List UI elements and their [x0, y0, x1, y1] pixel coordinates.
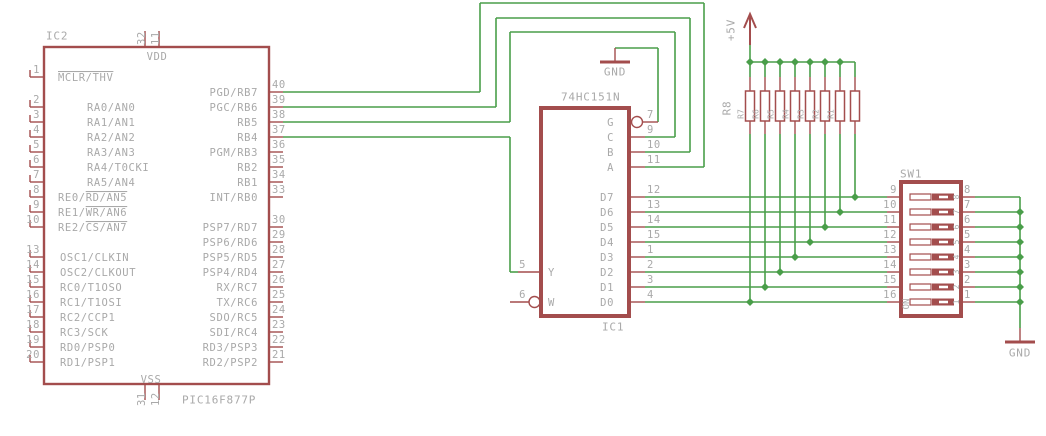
ic2-pin-name: RD3/PSP3: [203, 342, 258, 354]
wire-junction[interactable]: [776, 58, 784, 66]
sw1-pin-number: 3: [964, 259, 971, 271]
ic2-pin-number: 32: [136, 31, 148, 45]
ic2-pin-name: RA4/T0CKI: [87, 162, 149, 174]
ic2-pin-name: OSC1/CLKIN: [60, 252, 129, 264]
ic2-pin-name: PGC/RB6: [210, 102, 258, 114]
ic1-pin-name: W: [548, 297, 555, 309]
ic2-pin-number: 11: [150, 31, 162, 45]
sw1-position-digit: 1: [952, 299, 961, 304]
ic2-pin-name: RA2/AN2: [87, 132, 135, 144]
ic2-pin-number: 25: [272, 289, 286, 301]
ic2-pin-name: INT/RB0: [210, 192, 258, 204]
ic1-pin-number: 6: [519, 289, 526, 301]
ic2-pin-number: 26: [272, 274, 286, 286]
sw1-pin-number: 4: [964, 244, 971, 256]
ic2-pin-name: PSP5/RD5: [203, 252, 258, 264]
ic2-pin-name: PGD/RB7: [210, 87, 258, 99]
gnd-label-top: GND: [604, 66, 626, 79]
wire-junction[interactable]: [746, 298, 754, 306]
ic2-pin-number: 28: [272, 244, 286, 256]
ic2-pin-name: RC1/T1OSI: [60, 297, 122, 309]
ic2-pin-number: 9: [33, 199, 40, 211]
schematic-canvas: 1MCLR/THV2RA0/AN03RA1/AN14RA2/AN25RA3/AN…: [0, 0, 1046, 436]
sw1-pin-number: 15: [883, 274, 897, 286]
ic1-pin-number: 9: [647, 124, 654, 136]
sw1-switch-slot[interactable]: [910, 254, 931, 260]
ic2-pin-number: 3: [33, 109, 40, 121]
ic2-pin-number: 17: [26, 304, 40, 316]
ic1-body[interactable]: [541, 108, 629, 316]
sw1-switch-slot[interactable]: [910, 194, 931, 200]
ic2-pin-number: 22: [272, 334, 286, 346]
vcc-label: +5V: [725, 19, 738, 41]
sw1-position-digit: 5: [952, 239, 961, 244]
ic1-pin-number: 12: [647, 184, 661, 196]
sw1-switch-slot[interactable]: [910, 239, 931, 245]
wire-junction[interactable]: [1016, 268, 1024, 276]
resistor-label: R3: [797, 109, 806, 119]
sw1-pin-number: 11: [883, 214, 897, 226]
labels-layer: 1MCLR/THV2RA0/AN03RA1/AN14RA2/AN25RA3/AN…: [26, 31, 971, 406]
sw1-body[interactable]: [901, 182, 961, 316]
ic2-pin-number: 38: [272, 109, 286, 121]
wire-junction[interactable]: [1016, 238, 1024, 246]
sw1-switch-slot[interactable]: [910, 299, 931, 305]
sw1-pin-number: 16: [883, 289, 897, 301]
ic2-pin-name: RC0/T1OSO: [60, 282, 122, 294]
sw1-position-digit: 6: [952, 224, 961, 229]
ic2-pin-name: RE0/RD/AN5: [58, 192, 127, 204]
ic2-pin-number: 10: [26, 214, 40, 226]
ic1-pin-name: D7: [600, 192, 614, 204]
sw1-switch-slot[interactable]: [910, 209, 931, 215]
ic2-pin-number: 23: [272, 319, 286, 331]
ic2-pin-name: MCLR/THV: [58, 72, 113, 84]
wire-junction[interactable]: [821, 58, 829, 66]
sw1-switch-actuator-notch: [939, 301, 948, 304]
ic2-pin-number: 7: [33, 169, 40, 181]
ic1-pin-name: D3: [600, 252, 614, 264]
ic1-pin-name: D4: [600, 237, 614, 249]
sw1-position-digit: 4: [952, 254, 961, 259]
sw1-switch-actuator-notch: [939, 256, 948, 259]
ic2-pin-name: RE1/WR/AN6: [58, 207, 127, 219]
sw1-switch-actuator-notch: [939, 286, 948, 289]
wire-junction[interactable]: [791, 253, 799, 261]
ic2-pin-number: 40: [272, 79, 286, 91]
ic2-pin-name: RD0/PSP0: [60, 342, 115, 354]
wire-junction[interactable]: [806, 58, 814, 66]
ic2-pin-name: RB1: [237, 177, 258, 189]
ic2-pin-name: RA5/AN4: [87, 177, 135, 189]
ic2-pin-name: PSP7/RD7: [203, 222, 258, 234]
ic1-pin-name: D5: [600, 222, 614, 234]
ic2-pin-number: 30: [272, 214, 286, 226]
sw1-on-label: ON: [902, 299, 912, 310]
ic2-pin-name: RX/RC7: [216, 282, 258, 294]
sw1-switch-slot[interactable]: [910, 224, 931, 230]
resistor-label: R4: [782, 109, 791, 119]
ic2-pin-number: 24: [272, 304, 286, 316]
resistor-label: R6: [752, 109, 761, 119]
sw1-position-digit: 8: [952, 194, 961, 199]
ic2-pin-number: 18: [26, 319, 40, 331]
sw1-pin-number: 7: [964, 199, 971, 211]
ic2-pin-number: 36: [272, 139, 286, 151]
ic2-pin-name: PSP4/RD4: [203, 267, 258, 279]
ic2-pin-name: RA0/AN0: [87, 102, 135, 114]
sw1-switch-slot[interactable]: [910, 284, 931, 290]
wire-junction[interactable]: [836, 208, 844, 216]
ic1-pin-name: D1: [600, 282, 614, 294]
wire-junction[interactable]: [1016, 298, 1024, 306]
wire-junction[interactable]: [1016, 208, 1024, 216]
wire-junction[interactable]: [806, 238, 814, 246]
ic2-pin-name: RB4: [237, 132, 258, 144]
ic1-pin-name: D2: [600, 267, 614, 279]
ic2-pin-name: PSP6/RD6: [203, 237, 258, 249]
ic1-pin-name: A: [607, 162, 614, 174]
resistor-label: R5: [767, 109, 776, 119]
ic1-pin-number: 14: [647, 214, 661, 226]
ic2-pin-name: SDI/RC4: [210, 327, 258, 339]
ic2-pin-number: 34: [272, 169, 286, 181]
sw1-pin-number: 13: [883, 244, 897, 256]
ic2-pin-number: 16: [26, 289, 40, 301]
sw1-position-digit: 7: [952, 209, 961, 214]
ic1-ref: IC1: [602, 321, 624, 334]
ic2-pin-number: 31: [136, 392, 148, 406]
ic2-pin-name: RB5: [237, 117, 258, 129]
resistor-body[interactable]: [851, 91, 860, 121]
ic1-pin-name: C: [607, 132, 614, 144]
ic1-pin-name: D6: [600, 207, 614, 219]
ic1-pin-number: 3: [647, 274, 654, 286]
wire-junction[interactable]: [821, 223, 829, 231]
sw1-switch-actuator-notch: [939, 196, 948, 199]
ic2-pin-number: 20: [26, 349, 40, 361]
sw1-position-digit: 3: [952, 269, 961, 274]
ic1-pin-name: B: [607, 147, 614, 159]
ic2-pin-name: TX/RC6: [216, 297, 258, 309]
ic2-pin-name: RB2: [237, 162, 258, 174]
ic2-pin-number: 1: [33, 64, 40, 76]
ic2-pin-number: 13: [26, 244, 40, 256]
ic1-pin-number: 4: [647, 289, 654, 301]
ic2-pin-name: OSC2/CLKOUT: [60, 267, 136, 279]
wire-junction[interactable]: [761, 58, 769, 66]
sw1-switch-actuator-notch: [939, 241, 948, 244]
ic1-pin-number: 10: [647, 139, 661, 151]
ic2-pin-number: 27: [272, 259, 286, 271]
ic1-pin-inversion-circle: [632, 117, 643, 128]
ic1-pin-name: D0: [600, 297, 614, 309]
schematic: 1MCLR/THV2RA0/AN03RA1/AN14RA2/AN25RA3/AN…: [0, 0, 1046, 436]
resistor-label: R7: [737, 109, 746, 119]
ic2-pin-number: 14: [26, 259, 40, 271]
ic2-pin-number: 4: [33, 124, 40, 136]
ic2-pin-number: 15: [26, 274, 40, 286]
ic1-pin-number: 2: [647, 259, 654, 271]
ic2-pin-name: RE2/CS/AN7: [58, 222, 127, 234]
ic1-pin-number: 5: [519, 259, 526, 271]
ic2-pin-name: RC2/CCP1: [60, 312, 115, 324]
ic2-pin-number: 2: [33, 94, 40, 106]
resistor-label: R2: [812, 109, 821, 119]
wire-junction[interactable]: [836, 58, 844, 66]
ic2-pin-number: 39: [272, 94, 286, 106]
wire-junction[interactable]: [746, 58, 754, 66]
wire-junction[interactable]: [1016, 253, 1024, 261]
sw1-ref: SW1: [900, 168, 922, 181]
sw1-switch-actuator-notch: [939, 226, 948, 229]
ic2-pin-number: 5: [33, 139, 40, 151]
ic2-pin-number: 35: [272, 154, 286, 166]
ic1-pin-name: Y: [548, 267, 555, 279]
sw1-pin-number: 5: [964, 229, 971, 241]
sw1-pin-number: 14: [883, 259, 897, 271]
ic1-pin-name: G: [607, 117, 614, 129]
sw1-pin-number: 8: [964, 184, 971, 196]
sw1-switch-actuator-notch: [939, 271, 948, 274]
ic2-vss-label: VSS: [141, 374, 162, 386]
wire-junction[interactable]: [851, 193, 859, 201]
ic2-pin-name: RD1/PSP1: [60, 357, 115, 369]
ic2-pin-number: 19: [26, 334, 40, 346]
ic2-pin-name: RA1/AN1: [87, 117, 135, 129]
gnd-label-bottom: GND: [1009, 347, 1031, 360]
ic2-pin-number: 33: [272, 184, 286, 196]
sw1-pin-number: 12: [883, 229, 897, 241]
ic2-ref: IC2: [46, 30, 68, 43]
ic1-pin-number: 15: [647, 229, 661, 241]
ic1-pin-number: 7: [647, 109, 654, 121]
ic2-pin-number: 21: [272, 349, 286, 361]
sw1-pin-number: 10: [883, 199, 897, 211]
ic2-pin-name: RD2/PSP2: [203, 357, 258, 369]
resistor-body[interactable]: [836, 91, 845, 121]
ic2-pin-number: 8: [33, 184, 40, 196]
ic2-pin-number: 29: [272, 229, 286, 241]
sw1-position-digit: 2: [952, 284, 961, 289]
ic2-value: PIC16F877P: [182, 394, 256, 407]
ic1-pin-number: 13: [647, 199, 661, 211]
ic2-pin-number: 12: [150, 392, 162, 406]
ic2-pin-name: RC3/SCK: [60, 327, 109, 339]
wire-junction[interactable]: [1016, 283, 1024, 291]
sw1-pin-number: 1: [964, 289, 971, 301]
wire-junction[interactable]: [761, 283, 769, 291]
ic1-pin-inversion-circle: [529, 297, 540, 308]
sw1-pin-number: 2: [964, 274, 971, 286]
wire-junction[interactable]: [776, 268, 784, 276]
ic1-value: 74HC151N: [561, 91, 620, 104]
sw1-switch-slot[interactable]: [910, 269, 931, 275]
sw1-pin-number: 6: [964, 214, 971, 226]
ic1-pin-number: 1: [647, 244, 654, 256]
ic2-pin-name: SDO/RC5: [210, 312, 258, 324]
ic2-pin-number: 37: [272, 124, 286, 136]
sw1-switch-actuator-notch: [939, 211, 948, 214]
rnet-ref: R8: [721, 101, 734, 116]
ic2-vdd-label: VDD: [147, 51, 168, 63]
ic2-pin-name: PGM/RB3: [210, 147, 258, 159]
ic1-pin-number: 11: [647, 154, 661, 166]
wire-junction[interactable]: [1016, 223, 1024, 231]
ic2-pin-number: 6: [33, 154, 40, 166]
wire-junction[interactable]: [791, 58, 799, 66]
ic2-pin-name: RA3/AN3: [87, 147, 135, 159]
sw1-pin-number: 9: [890, 184, 897, 196]
resistor-label: R1: [827, 109, 836, 119]
